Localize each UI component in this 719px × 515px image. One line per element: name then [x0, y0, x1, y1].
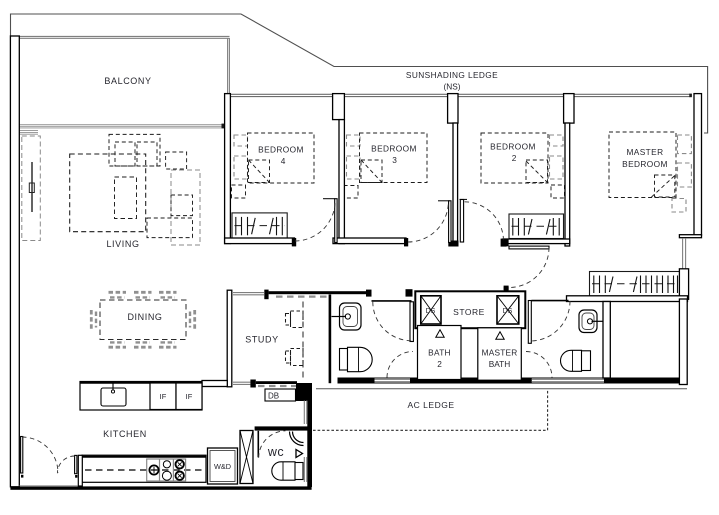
svg-text:BEDROOM: BEDROOM: [258, 145, 304, 155]
svg-text:MASTER: MASTER: [482, 348, 518, 358]
svg-text:BEDROOM: BEDROOM: [490, 142, 536, 152]
svg-text:wc: wc: [267, 445, 284, 459]
svg-text:STUDY: STUDY: [245, 335, 279, 345]
svg-text:STORE: STORE: [453, 307, 485, 317]
svg-text:BATH: BATH: [489, 359, 511, 369]
svg-text:BALCONY: BALCONY: [104, 76, 151, 86]
svg-text:LIVING: LIVING: [106, 239, 139, 249]
svg-text:2: 2: [437, 359, 442, 369]
svg-text:4: 4: [281, 156, 286, 166]
svg-text:BEDROOM: BEDROOM: [371, 144, 417, 154]
svg-text:2: 2: [512, 153, 517, 163]
svg-text:3: 3: [392, 155, 397, 165]
svg-text:(NS): (NS): [443, 82, 460, 92]
svg-text:DS: DS: [426, 308, 436, 315]
svg-text:BATH: BATH: [428, 348, 451, 358]
svg-text:SUNSHADING LEDGE: SUNSHADING LEDGE: [406, 70, 498, 80]
svg-text:DS: DS: [503, 308, 513, 315]
svg-text:IF: IF: [160, 392, 167, 401]
svg-text:MASTER: MASTER: [627, 147, 664, 157]
svg-text:KITCHEN: KITCHEN: [103, 429, 147, 439]
svg-text:AC LEDGE: AC LEDGE: [408, 400, 455, 410]
svg-text:DINING: DINING: [127, 312, 162, 322]
svg-text:W&D: W&D: [214, 462, 231, 471]
svg-text:IF: IF: [186, 392, 193, 401]
svg-text:DB: DB: [268, 392, 279, 401]
svg-text:BEDROOM: BEDROOM: [622, 159, 668, 169]
